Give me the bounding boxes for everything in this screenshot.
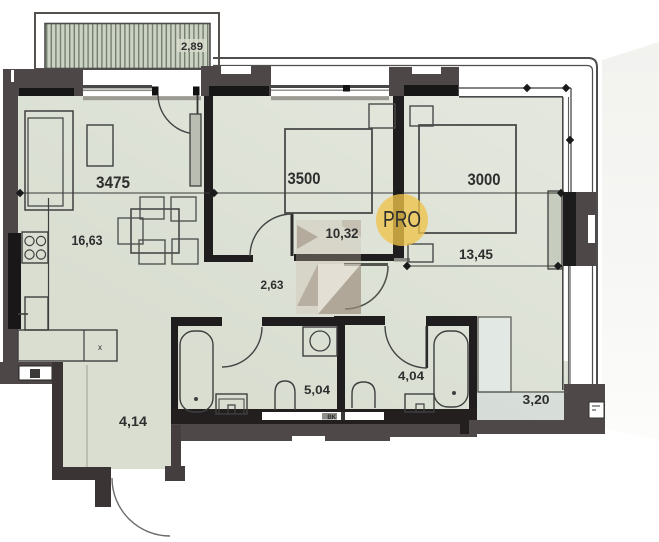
svg-text:3475: 3475 (96, 173, 130, 192)
svg-text:2,89: 2,89 (181, 41, 203, 53)
svg-text:BK: BK (327, 415, 336, 421)
svg-text:PRO: PRO (383, 206, 421, 232)
svg-text:3,20: 3,20 (523, 392, 550, 407)
svg-text:4,04: 4,04 (398, 369, 424, 383)
svg-text:2,63: 2,63 (261, 278, 284, 292)
svg-text:3500: 3500 (288, 169, 321, 188)
svg-text:4,14: 4,14 (119, 413, 147, 429)
svg-text:16,63: 16,63 (72, 233, 103, 248)
svg-text:5,04: 5,04 (304, 383, 330, 397)
svg-text:10,32: 10,32 (326, 226, 359, 241)
svg-text:13,45: 13,45 (459, 246, 493, 262)
svg-text:3000: 3000 (468, 170, 501, 189)
svg-text:x: x (98, 343, 102, 352)
